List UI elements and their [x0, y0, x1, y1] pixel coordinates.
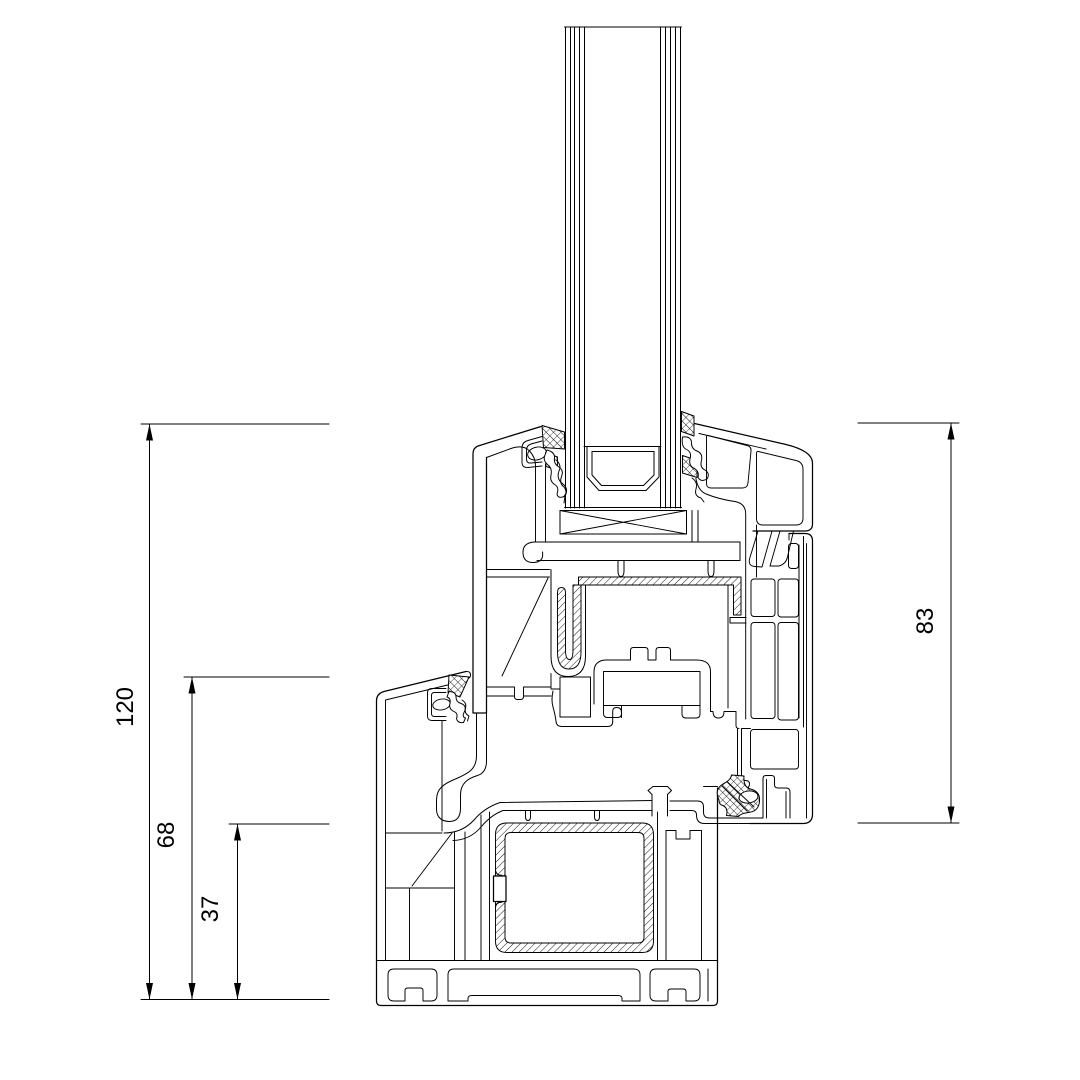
svg-text:37: 37 [197, 896, 224, 923]
svg-text:83: 83 [912, 608, 939, 635]
svg-text:120: 120 [112, 687, 139, 727]
svg-text:68: 68 [153, 822, 180, 849]
